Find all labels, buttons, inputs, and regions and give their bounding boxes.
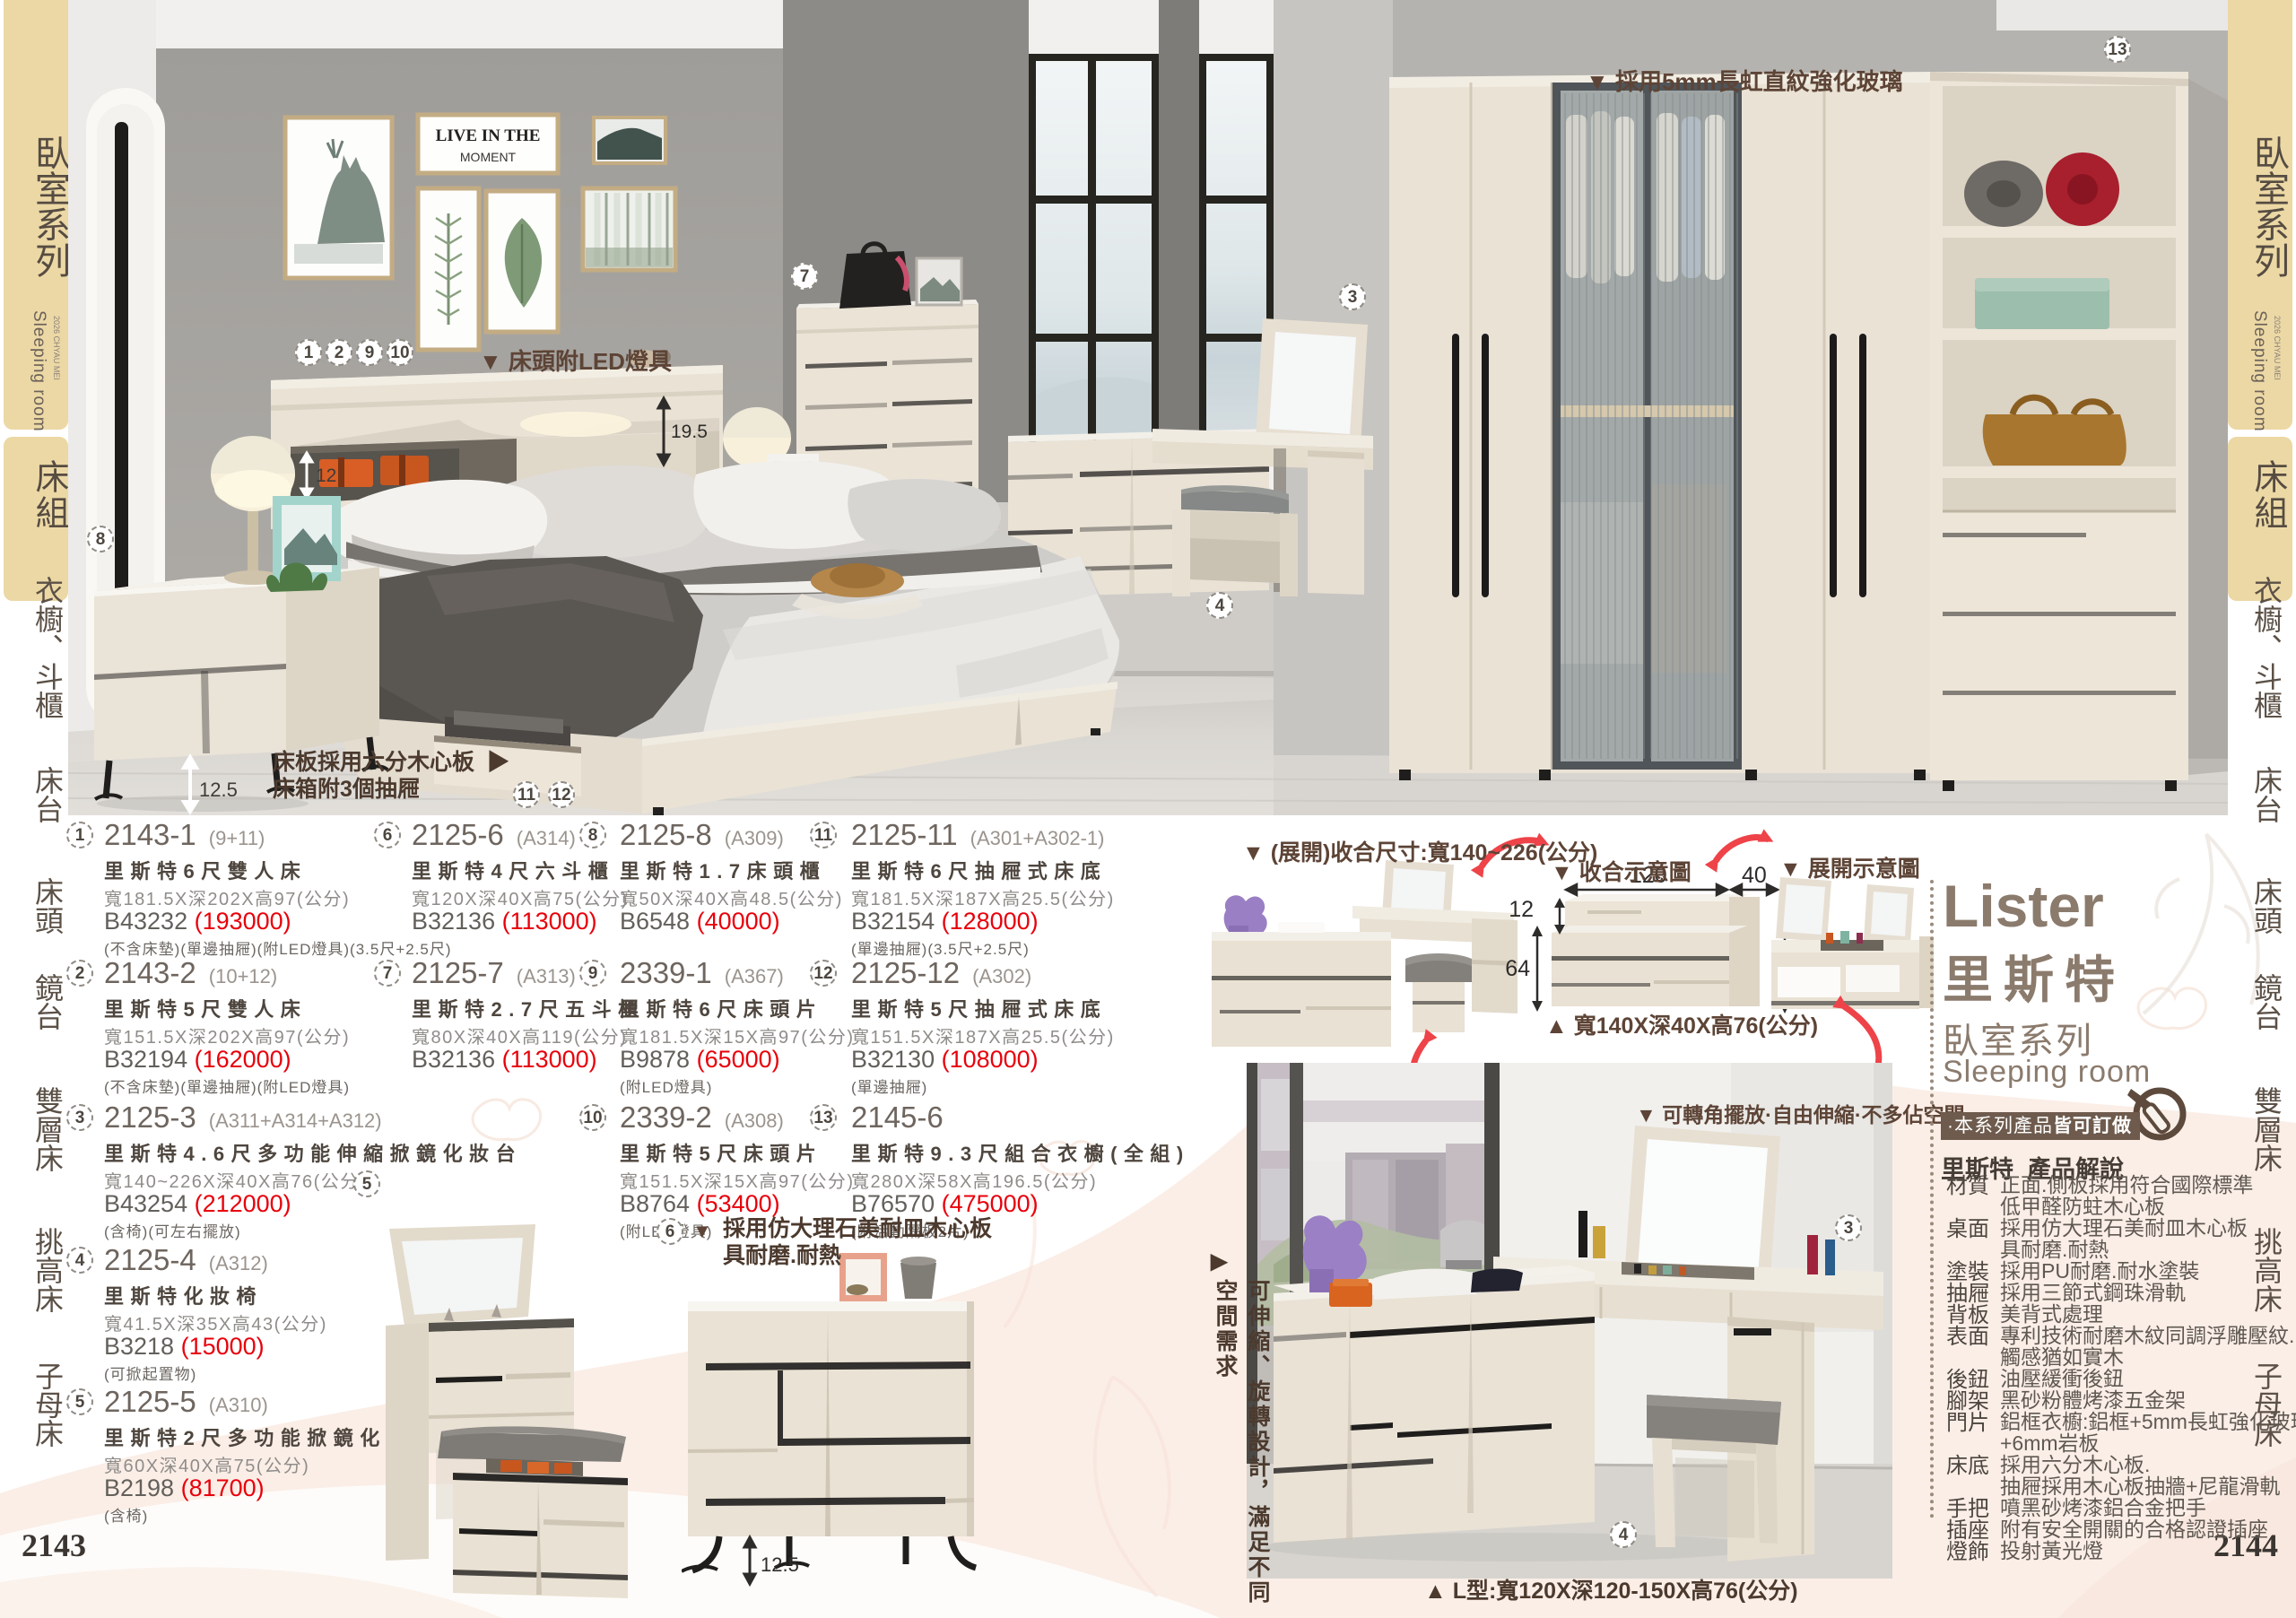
- svg-text:64: 64: [1505, 956, 1530, 981]
- svg-text:MOMΕNT: MOMΕNT: [460, 150, 517, 164]
- svg-text:▼ 床頭附LED燈具: ▼ 床頭附LED燈具: [479, 348, 672, 375]
- svg-text:40: 40: [1742, 863, 1767, 888]
- svg-text:19.5: 19.5: [671, 422, 708, 442]
- svg-text:LIVE IN THE: LIVE IN THE: [436, 126, 541, 145]
- svg-text:12.5: 12.5: [199, 779, 238, 801]
- svg-text:床箱附3個抽屜: 床箱附3個抽屜: [273, 776, 420, 802]
- svg-text:▼ 採用5mm長虹直紋強化玻璃: ▼ 採用5mm長虹直紋強化玻璃: [1586, 68, 1903, 95]
- svg-text:12: 12: [316, 465, 336, 486]
- svg-text:12: 12: [1509, 897, 1534, 922]
- svg-text:12.5: 12.5: [761, 1553, 799, 1576]
- svg-text:床板採用六分木心板 ▶: 床板採用六分木心板 ▶: [273, 749, 509, 775]
